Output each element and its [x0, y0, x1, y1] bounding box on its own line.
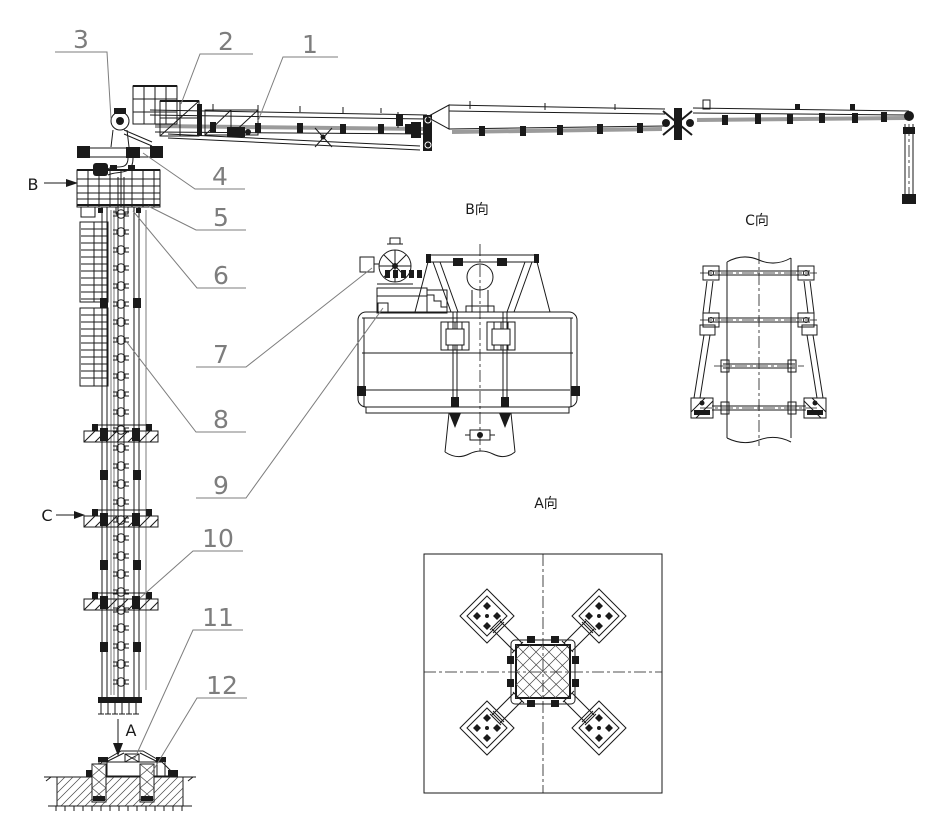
end-hose	[902, 111, 916, 204]
turret-head	[77, 86, 258, 176]
part-leader-6	[133, 211, 246, 288]
mast-clamp-block-right	[487, 322, 515, 350]
delivery-pipe	[113, 177, 129, 697]
outrigger-arm-ul	[460, 589, 523, 653]
part-leader-2	[181, 54, 253, 104]
part-leader-5	[148, 206, 246, 230]
slewing-flange-beam	[77, 146, 163, 158]
outrigger-arm-ur	[562, 589, 626, 652]
mast-clamp-block-left	[441, 322, 469, 350]
section-marker-c: C	[41, 506, 85, 525]
view-title-a: A向	[534, 496, 558, 512]
part-label-8: 8	[213, 405, 229, 434]
climbing-brace-right	[788, 266, 826, 418]
section-marker-b: B	[28, 175, 78, 194]
part-leader-3	[55, 52, 111, 119]
outrigger-arm-ll	[460, 692, 524, 755]
turret-support-table	[415, 254, 550, 312]
placing-boom-engineering-drawing: B C A B向	[0, 0, 947, 826]
platform-frame	[357, 303, 580, 428]
climbing-brace-left	[691, 266, 729, 418]
part-label-2: 2	[218, 27, 234, 56]
boom-pivot	[111, 108, 152, 147]
view-title-b: B向	[465, 202, 489, 218]
section-arrow-c	[74, 511, 85, 519]
view-title-c: C向	[745, 213, 769, 229]
section-letter-a: A	[126, 721, 137, 740]
part-label-4: 4	[212, 162, 228, 191]
mast	[80, 177, 158, 714]
part-label-6: 6	[213, 261, 229, 290]
boom-arm-1	[150, 104, 427, 134]
mast-splice	[100, 560, 141, 570]
drawing-canvas: B C A B向	[0, 0, 947, 826]
foundation-elevation	[44, 751, 196, 811]
concrete-block	[44, 777, 196, 806]
part-label-5: 5	[213, 203, 229, 232]
part-label-7: 7	[213, 340, 229, 369]
part-label-12: 12	[206, 671, 238, 700]
view-a: A向	[424, 496, 662, 793]
view-b: B向	[357, 202, 580, 457]
main-elevation: B C A	[28, 86, 916, 811]
outrigger-arm-lr	[563, 691, 626, 755]
anchor-bolts	[92, 764, 154, 802]
boom-deep-arm	[427, 101, 665, 136]
mast-tube	[727, 252, 791, 446]
section-arrow-b	[66, 179, 78, 187]
section-marker-a: A	[113, 719, 137, 756]
section-letter-b: B	[28, 175, 39, 194]
mast-splice	[100, 470, 141, 480]
section-letter-c: C	[41, 506, 52, 525]
part-label-1: 1	[302, 30, 318, 59]
distributor-outlet	[98, 697, 142, 714]
part-label-3: 3	[73, 25, 89, 54]
boom-assembly	[150, 100, 916, 204]
part-label-10: 10	[202, 524, 234, 553]
part-label-11: 11	[202, 603, 234, 632]
part-leader-10	[140, 551, 243, 598]
view-a-border	[424, 554, 662, 793]
view-c: C向	[691, 213, 826, 446]
wall-frame-3	[84, 592, 158, 610]
part-leader-9	[196, 308, 383, 498]
part-leader-1	[258, 57, 338, 121]
ground-line	[48, 806, 192, 811]
boom-arm-3	[693, 104, 909, 125]
wall-frame-1	[84, 424, 158, 442]
part-label-9: 9	[213, 471, 229, 500]
